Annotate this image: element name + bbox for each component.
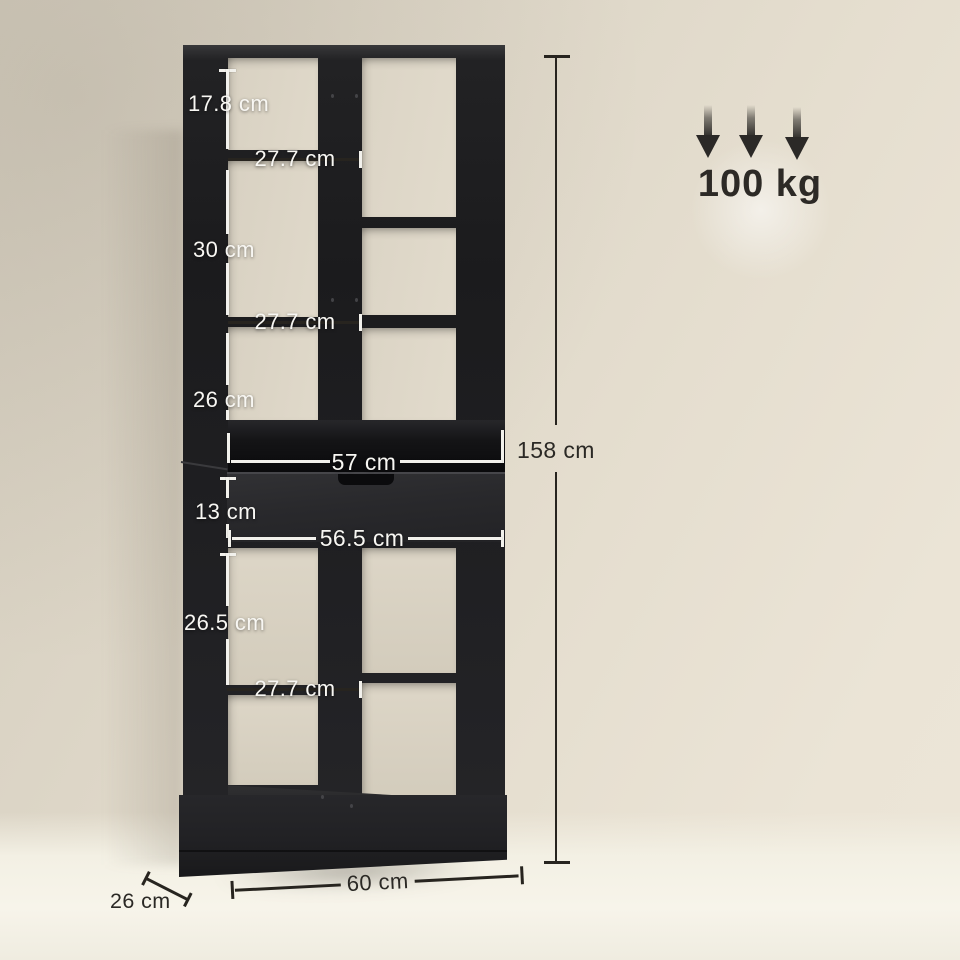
dim-line-bottom-cell-height	[226, 553, 229, 606]
dim-tick	[228, 530, 231, 547]
dim-line-compartment-width	[231, 460, 330, 463]
down-arrow-icon	[696, 105, 720, 157]
dim-label-middle-shelf-width: 27.7 cm	[234, 309, 356, 335]
dim-label-middle-cell-height: 30 cm	[193, 237, 255, 263]
cell-bottom-right-1	[362, 548, 456, 673]
dim-line-middle-cell-height	[226, 263, 229, 315]
cell-bottom-left-2	[228, 695, 318, 785]
screw-dot	[355, 94, 358, 98]
dim-tick	[227, 433, 230, 463]
cell-top-right-1	[362, 58, 456, 217]
weight-capacity-badge: 100 kg	[660, 95, 860, 225]
dim-tick	[230, 881, 233, 899]
cell-top-right-2	[362, 228, 456, 315]
screw-dot	[355, 298, 358, 302]
dim-label-compartment-width: 57 cm	[328, 449, 400, 476]
dim-tick	[520, 866, 523, 884]
screw-dot	[331, 298, 334, 302]
dim-label-overall-height: 158 cm	[517, 437, 595, 464]
screw-dot	[331, 94, 334, 98]
dim-label-bottom-cell-height: 26.5 cm	[184, 610, 265, 636]
down-arrow-icon	[785, 107, 809, 159]
dim-label-depth: 26 cm	[110, 889, 171, 914]
dim-line-bottom-cell-height	[226, 639, 229, 685]
dim-line-middle-cell-height	[226, 170, 229, 234]
cell-bottom-right-2	[362, 683, 456, 800]
dim-label-drawer-height: 13 cm	[195, 499, 257, 525]
dim-tick	[501, 430, 504, 463]
wall-shadow	[104, 130, 184, 865]
screw-dot	[321, 795, 324, 799]
dim-line-overall-height	[555, 55, 557, 425]
dim-line-drawer-width	[408, 537, 502, 540]
dim-label-top-cell-height: 17.8 cm	[188, 91, 269, 117]
cell-top-right-3	[362, 328, 456, 420]
dim-line-drawer-width	[232, 537, 316, 540]
dim-tick	[544, 861, 570, 864]
glow-circle	[688, 137, 834, 283]
dim-tick	[359, 314, 362, 331]
dim-label-bottom-shelf-width: 27.7 cm	[234, 676, 356, 702]
dim-line-overall-height	[555, 472, 557, 863]
weight-capacity-label: 100 kg	[660, 163, 860, 206]
dim-line-drawer-height	[226, 477, 229, 498]
screw-dot	[350, 804, 353, 808]
dim-line-overall-width	[415, 874, 519, 882]
dim-line-compartment-width	[400, 460, 502, 463]
dim-label-drawer-width: 56.5 cm	[316, 525, 408, 552]
dim-label-overall-width: 60 cm	[340, 868, 415, 898]
dim-tick	[544, 55, 570, 58]
plinth-seam	[179, 850, 507, 852]
scene: 17.8 cm 27.7 cm 30 cm 27.7 cm 26 cm 57 c…	[0, 0, 960, 960]
dim-tick	[359, 151, 362, 168]
down-arrow-icon	[739, 105, 763, 157]
dim-line-overall-width	[235, 883, 341, 891]
dim-label-top-shelf-width: 27.7 cm	[234, 146, 356, 172]
dim-label-lower-cell-height: 26 cm	[193, 387, 255, 413]
dim-line-lower-cell-height	[226, 333, 229, 385]
dim-tick	[359, 681, 362, 698]
